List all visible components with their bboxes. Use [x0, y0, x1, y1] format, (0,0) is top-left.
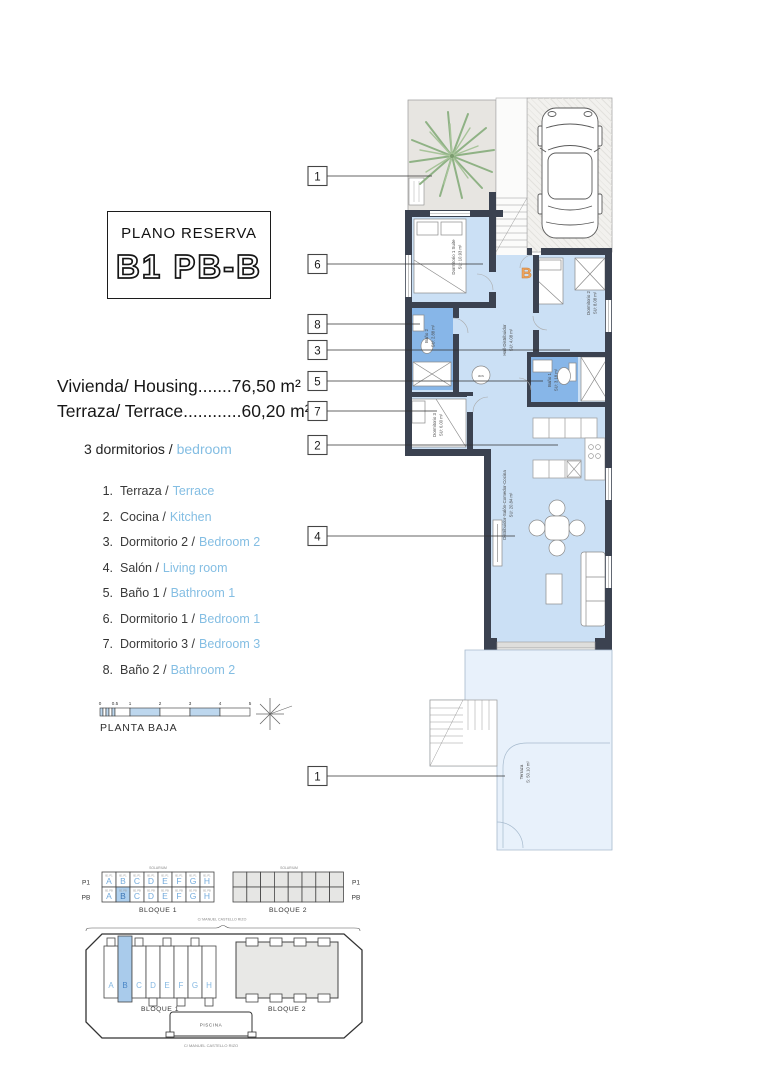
piscina: PISCINA	[166, 1012, 256, 1037]
svg-text:F: F	[176, 891, 181, 901]
svg-text:B1 P1: B1 P1	[119, 874, 127, 878]
legend-item: 2.Cocina /Kitchen	[99, 510, 260, 524]
svg-text:Dormitorio 1 Suite: Dormitorio 1 Suite	[451, 239, 456, 275]
floor-plan-drawing: acs	[300, 92, 620, 882]
svg-text:E: E	[162, 876, 168, 886]
row-label-p1-left: P1	[82, 880, 90, 887]
legend-es: Salón /	[120, 561, 159, 575]
svg-text:SU: 4.08 m²: SU: 4.08 m²	[509, 328, 514, 351]
svg-text:C: C	[134, 876, 140, 886]
callout-bath1: 5	[308, 372, 327, 391]
entry-stairs	[496, 98, 527, 258]
site-bloque1-strips	[104, 936, 216, 1006]
legend-en: Living room	[163, 561, 228, 575]
svg-text:C: C	[134, 891, 140, 901]
svg-text:G: G	[190, 876, 197, 886]
svg-text:3: 3	[314, 346, 320, 358]
callout-bedroom2: 3	[308, 341, 327, 360]
svg-text:B1 P1: B1 P1	[203, 874, 211, 878]
plan-subtitle: PLANO RESERVA	[108, 225, 270, 242]
svg-text:B1 P1: B1 P1	[189, 874, 197, 878]
scale-ticks: 0 0.5 1 2 3 4 5	[99, 701, 252, 706]
svg-text:B1 PB: B1 PB	[133, 889, 141, 893]
tv-bench	[493, 520, 502, 566]
housing-area-line: Vivienda/ Housing.......76,50 m²	[57, 374, 311, 399]
row-label-pb-left: PB	[82, 895, 91, 902]
legend-item: 8.Baño 2 /Bathroom 2	[99, 663, 260, 677]
bedrooms-en: bedroom	[177, 441, 232, 457]
highlighted-unit-letter: B	[120, 891, 126, 901]
callout-living: 4	[308, 527, 327, 546]
svg-text:H: H	[206, 981, 212, 990]
bedrooms-es: 3 dormitorios /	[84, 441, 173, 457]
plan-title-box: PLANO RESERVA B1 PB-B	[107, 211, 271, 299]
legend-num: 6.	[99, 612, 113, 626]
svg-text:B1 P1: B1 P1	[175, 874, 183, 878]
legend-es: Dormitorio 2 /	[120, 535, 195, 549]
scale-bar-segments	[100, 708, 250, 716]
svg-text:5: 5	[314, 377, 320, 389]
north-star-icon	[256, 698, 292, 730]
area-summary: Vivienda/ Housing.......76,50 m² Terraza…	[57, 374, 311, 424]
callout-bedroom3: 7	[308, 402, 327, 421]
solarium-label-1: SOLARIUM	[149, 866, 167, 870]
legend-en: Bedroom 2	[199, 535, 260, 549]
svg-text:1: 1	[314, 772, 320, 784]
svg-text:B1 PB: B1 PB	[119, 889, 127, 893]
svg-text:SU: 20.84 m²: SU: 20.84 m²	[509, 492, 514, 517]
svg-text:H: H	[204, 876, 210, 886]
svg-text:C: C	[136, 981, 142, 990]
svg-text:Distribuidor-Salón-Comedor-Coc: Distribuidor-Salón-Comedor-Cocina	[502, 470, 507, 540]
svg-text:B1 PB: B1 PB	[161, 889, 169, 893]
svg-text:Hall-Distribuidor: Hall-Distribuidor	[502, 324, 507, 356]
legend-num: 7.	[99, 637, 113, 651]
bloque2-grid	[233, 872, 343, 902]
svg-text:SU: 10.93 m²: SU: 10.93 m²	[458, 244, 463, 269]
svg-text:8: 8	[314, 320, 320, 332]
svg-text:G: G	[190, 891, 197, 901]
svg-text:SU: 3.18 m²: SU: 3.18 m²	[554, 368, 559, 391]
svg-text:A: A	[108, 981, 114, 990]
callout-terrace-top: 1	[308, 167, 327, 186]
legend-es: Baño 2 /	[120, 663, 167, 677]
legend-item: 7.Dormitorio 3 /Bedroom 3	[99, 637, 260, 651]
svg-text:Baño 2: Baño 2	[424, 328, 429, 342]
legend-en: Bedroom 1	[199, 612, 260, 626]
svg-text:0: 0	[99, 701, 102, 706]
svg-text:Dormitorio 3: Dormitorio 3	[432, 412, 437, 436]
legend-en: Bedroom 3	[199, 637, 260, 651]
terrace-stairs	[430, 700, 497, 766]
street-label-site: C/ MANUEL CASTELLO RIZO	[184, 1043, 238, 1048]
bloque1-table-label: BLOQUE 1	[139, 907, 177, 914]
legend-item: 4.Salón /Living room	[99, 561, 260, 575]
legend-en: Terrace	[173, 484, 215, 498]
svg-text:G: G	[192, 981, 198, 990]
svg-text:4: 4	[219, 701, 222, 706]
floor-plan-page: { "title_box": { "label": "PLANO RESERVA…	[0, 0, 763, 1080]
terrace-area-line: Terraza/ Terrace............60,20 m²	[57, 399, 311, 424]
svg-text:B1 P1: B1 P1	[147, 874, 155, 878]
legend-item: 1.Terraza /Terrace	[99, 484, 260, 498]
car-icon	[538, 108, 602, 238]
wardrobe-bedroom2	[575, 258, 605, 290]
legend-item: 5.Baño 1 /Bathroom 1	[99, 586, 260, 600]
piscina-label: PISCINA	[200, 1023, 223, 1028]
svg-text:4: 4	[314, 532, 321, 544]
callout-terrace-bottom: 1	[308, 767, 327, 786]
room-legend: 1.Terraza /Terrace 2.Cocina /Kitchen 3.D…	[99, 484, 260, 688]
svg-text:S: 50.10 m²: S: 50.10 m²	[526, 761, 531, 783]
planta-baja-caption: PLANTA BAJA	[100, 722, 177, 734]
svg-text:B1 P1: B1 P1	[161, 874, 169, 878]
legend-item: 3.Dormitorio 2 /Bedroom 2	[99, 535, 260, 549]
svg-text:2: 2	[314, 441, 320, 453]
svg-text:E: E	[164, 981, 169, 990]
legend-num: 4.	[99, 561, 113, 575]
svg-text:Terraza: Terraza	[519, 764, 524, 779]
scale-bar: 0 0.5 1 2 3 4 5 PLANTA BAJA	[95, 698, 300, 744]
bedrooms-line: 3 dormitorios / bedroom	[84, 441, 232, 457]
coffee-table	[546, 574, 562, 604]
svg-text:B: B	[120, 876, 126, 886]
svg-text:E: E	[162, 891, 168, 901]
site-bloque2-block	[236, 938, 338, 1002]
bed-bedroom2	[537, 258, 563, 304]
wardrobe-hall	[581, 357, 608, 401]
svg-text:SU: 8.08 m²: SU: 8.08 m²	[593, 291, 598, 314]
legend-es: Baño 1 /	[120, 586, 167, 600]
legend-en: Bathroom 2	[171, 663, 236, 677]
entrance-letter: B	[521, 265, 532, 282]
svg-text:SU: 2.88 m²: SU: 2.88 m²	[431, 324, 436, 347]
svg-text:B1 PB: B1 PB	[147, 889, 155, 893]
svg-text:3: 3	[189, 701, 192, 706]
svg-text:B1 P1: B1 P1	[133, 874, 141, 878]
sofa	[581, 552, 605, 626]
callout-bath2: 8	[308, 315, 327, 334]
svg-text:5: 5	[249, 701, 252, 706]
svg-text:B1 PB: B1 PB	[105, 889, 113, 893]
svg-text:D: D	[148, 876, 154, 886]
svg-text:acs: acs	[478, 374, 484, 378]
svg-text:Dormitorio 2: Dormitorio 2	[586, 290, 591, 314]
svg-text:F: F	[176, 876, 181, 886]
legend-en: Bathroom 1	[171, 586, 236, 600]
legend-num: 1.	[99, 484, 113, 498]
bloque2-table-label: BLOQUE 2	[269, 907, 307, 914]
svg-text:A: A	[106, 876, 112, 886]
svg-text:B1 PB: B1 PB	[175, 889, 183, 893]
site-bloque2-label: BLOQUE 2	[268, 1006, 306, 1013]
legend-item: 6.Dormitorio 1 /Bedroom 1	[99, 612, 260, 626]
svg-text:A: A	[106, 891, 112, 901]
svg-text:Baño 1: Baño 1	[547, 372, 552, 386]
site-highlighted-letter: B	[122, 981, 127, 990]
svg-text:F: F	[179, 981, 184, 990]
svg-text:B1 PB: B1 PB	[189, 889, 197, 893]
legend-es: Dormitorio 1 /	[120, 612, 195, 626]
legend-es: Cocina /	[120, 510, 166, 524]
svg-text:1: 1	[314, 172, 320, 184]
solarium-label-2: SOLARIUM	[280, 866, 298, 870]
legend-es: Terraza /	[120, 484, 169, 498]
highlighted-unit-strip	[118, 936, 132, 1002]
legend-num: 2.	[99, 510, 113, 524]
callout-boxes: 1 6 8 3 5 7 2 4 1	[308, 167, 327, 786]
row-label-pb-right: PB	[352, 895, 361, 902]
svg-text:1: 1	[129, 701, 132, 706]
row-label-p1-right: P1	[352, 880, 360, 887]
svg-text:0.5: 0.5	[112, 701, 119, 706]
svg-text:B1 PB: B1 PB	[203, 889, 211, 893]
legend-en: Kitchen	[170, 510, 212, 524]
svg-text:B1 P1: B1 P1	[105, 874, 113, 878]
svg-text:H: H	[204, 891, 210, 901]
legend-num: 8.	[99, 663, 113, 677]
svg-text:7: 7	[314, 407, 320, 419]
legend-num: 5.	[99, 586, 113, 600]
svg-text:SU: 6.00 m²: SU: 6.00 m²	[439, 413, 444, 436]
svg-text:6: 6	[314, 260, 320, 272]
callout-kitchen: 2	[308, 436, 327, 455]
unit-code-title: B1 PB-B	[108, 248, 270, 286]
callout-bedroom1: 6	[308, 255, 327, 274]
svg-text:2: 2	[159, 701, 162, 706]
site-plan: A B C D E F G H BLOQUE 1 BLOQUE 2 PISCIN…	[78, 920, 378, 1054]
svg-text:D: D	[148, 891, 154, 901]
svg-text:D: D	[150, 981, 156, 990]
legend-num: 3.	[99, 535, 113, 549]
legend-es: Dormitorio 3 /	[120, 637, 195, 651]
